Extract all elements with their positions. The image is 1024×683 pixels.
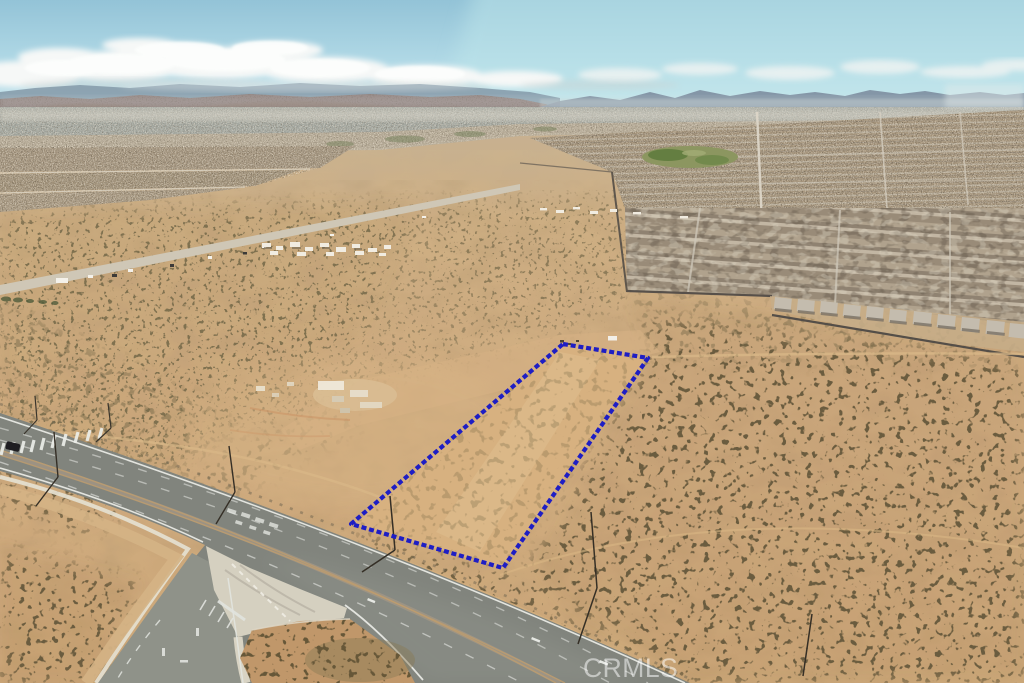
svg-text:CRMLS: CRMLS — [583, 653, 678, 683]
